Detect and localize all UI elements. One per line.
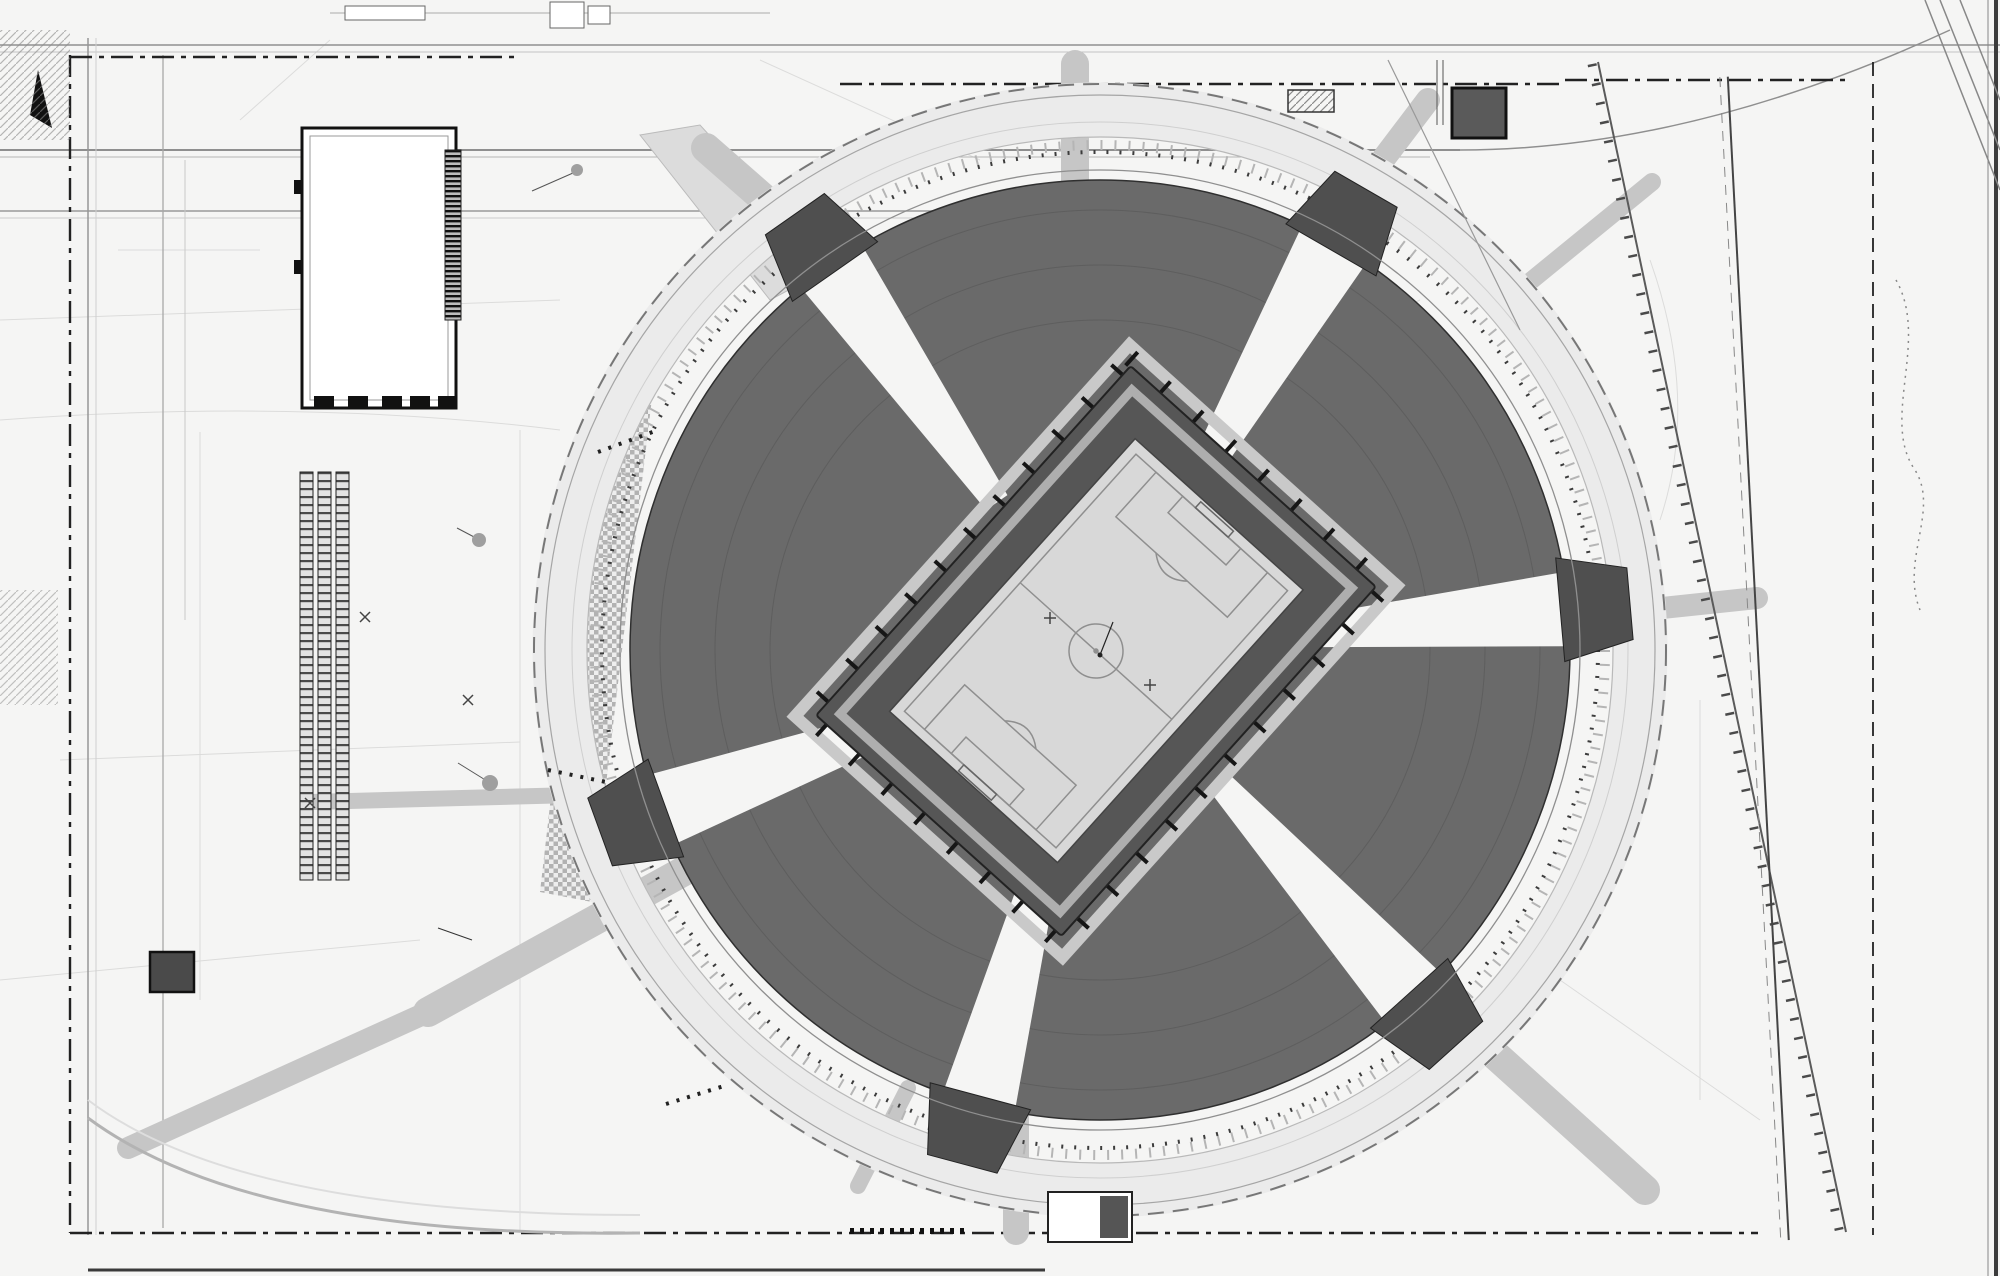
site-plan-canvas bbox=[0, 0, 2000, 1276]
text-layer bbox=[0, 0, 2000, 1276]
